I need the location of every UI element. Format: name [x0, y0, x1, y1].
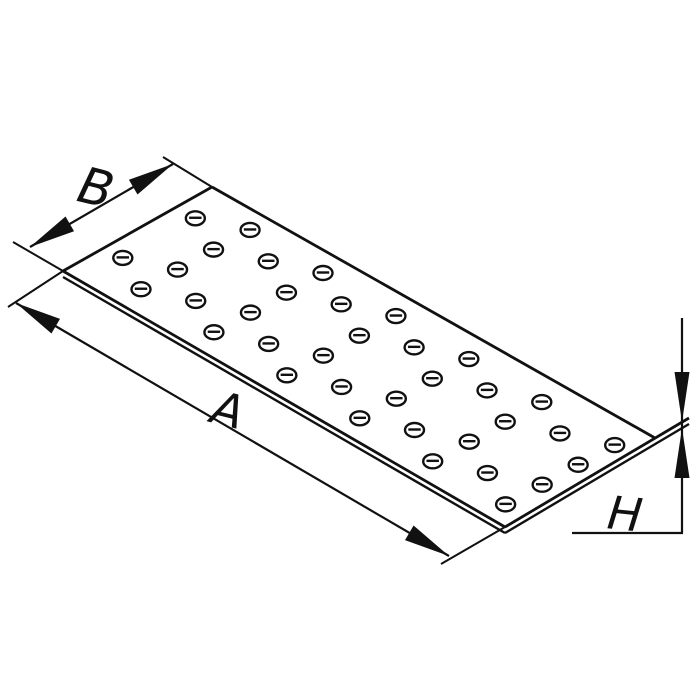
plate-hole — [423, 372, 442, 386]
plate-holes-group — [113, 211, 624, 511]
plate-hole — [533, 478, 552, 492]
plate-hole — [460, 435, 479, 449]
plate-top-edge — [212, 187, 655, 438]
plate-hole — [405, 340, 424, 354]
plate-hole — [478, 383, 497, 397]
plate-hole — [386, 309, 405, 323]
plate-bottom-left-edge — [63, 271, 505, 527]
thickness-dimension-label: H — [605, 485, 645, 542]
plate-hole — [387, 392, 406, 406]
drawing-sheet: B A H — [0, 0, 700, 700]
dim-b-arrow-right — [129, 164, 173, 194]
dim-h-arrow-upper — [675, 372, 690, 422]
plate-right-thickness-edge — [505, 424, 689, 533]
plate-hole — [113, 251, 132, 265]
plate-right-edge — [505, 418, 689, 527]
plate-hole — [532, 395, 551, 409]
plate-hole — [569, 458, 588, 472]
plate-hole — [168, 263, 187, 277]
dim-a-extension-top — [8, 271, 63, 307]
plate-hole — [332, 297, 351, 311]
plate-hole — [277, 286, 296, 300]
dim-b-extension-right — [163, 157, 212, 187]
plate-hole — [350, 329, 369, 343]
dim-a-arrow-bottom — [405, 525, 449, 556]
plate-hole — [259, 254, 278, 268]
plate-hole — [131, 282, 150, 296]
plate-hole — [550, 426, 569, 440]
width-dimension-label: B — [72, 156, 119, 221]
plate-hole — [186, 294, 205, 308]
plate-hole — [277, 368, 296, 382]
plate-hole — [496, 497, 515, 511]
plate-hole — [259, 337, 278, 351]
plate-hole — [423, 454, 442, 468]
dim-b-extension-left — [13, 242, 63, 271]
plate-outline-group — [63, 187, 689, 533]
dim-a-arrow-top — [16, 303, 60, 334]
plate-hole — [496, 415, 515, 429]
plate-hole — [332, 380, 351, 394]
plate-hole — [204, 325, 223, 339]
technical-drawing: B A H — [0, 0, 700, 700]
plate-hole — [405, 423, 424, 437]
dim-b-arrow-left — [30, 217, 74, 247]
length-dimension-label: A — [203, 379, 250, 440]
plate-hole — [241, 223, 260, 237]
plate-hole — [186, 211, 205, 225]
plate-hole — [241, 306, 260, 320]
dim-a-extension-bottom — [441, 527, 505, 564]
plate-hole — [314, 266, 333, 280]
plate-hole — [314, 349, 333, 363]
plate-hole — [459, 352, 478, 366]
plate-hole — [350, 411, 369, 425]
plate-hole — [478, 466, 497, 480]
plate-hole — [605, 438, 624, 452]
plate-hole — [204, 243, 223, 257]
dim-h-arrow-lower — [675, 428, 690, 478]
dimension-lines-group — [8, 157, 690, 564]
